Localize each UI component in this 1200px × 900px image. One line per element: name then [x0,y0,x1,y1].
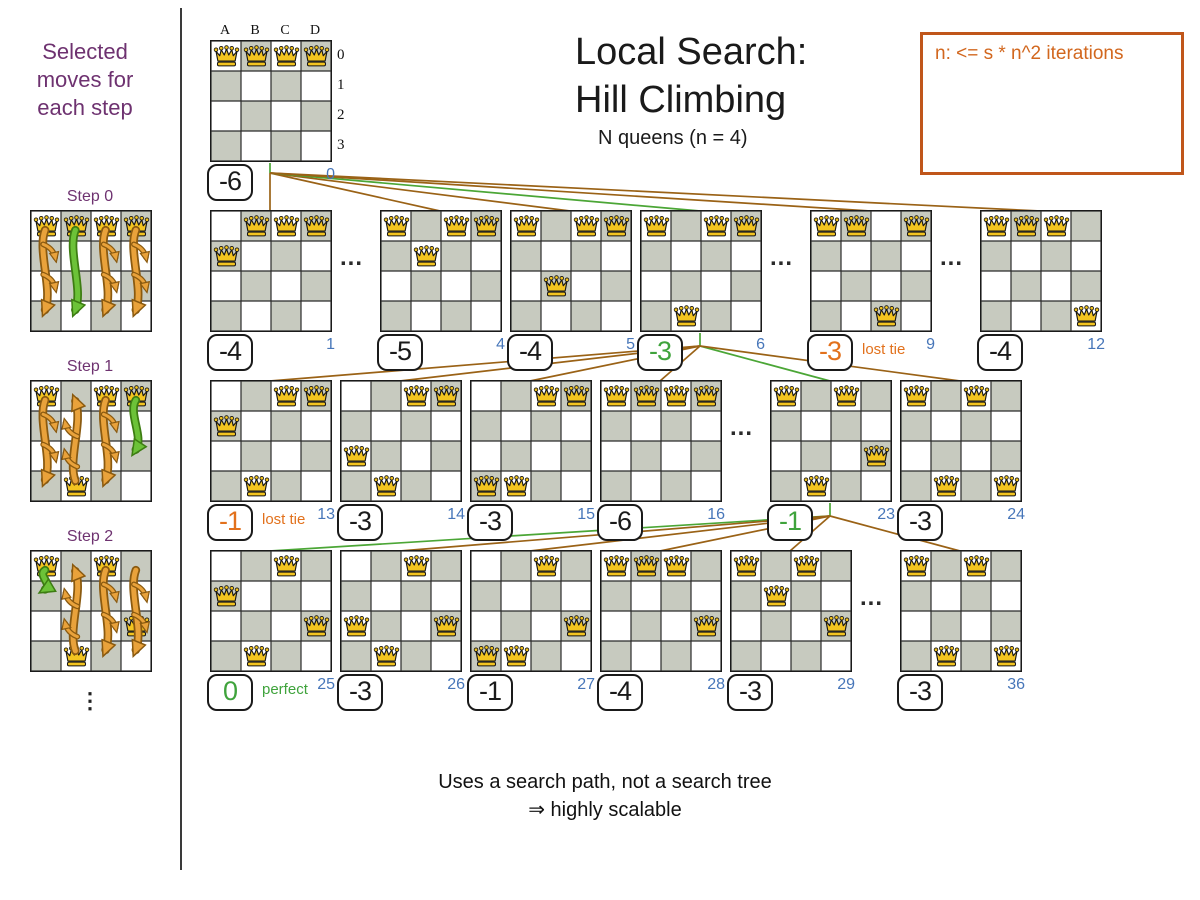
board-cell [861,381,891,411]
board-cell [701,241,731,271]
board-cell [701,301,731,331]
iteration-index: 12 [1087,336,1105,354]
board-cell [91,381,121,411]
footer-line2: ⇒ highly scalable [180,796,1030,824]
row1-ellipsis-b: ... [770,244,793,272]
board-cell [271,211,301,241]
board-cell [271,131,301,161]
board-cell [471,271,501,301]
board-cell [821,611,851,641]
board-cell [341,381,371,411]
chessboard [770,380,892,502]
board-cell [31,241,61,271]
iteration-index: 13 [317,506,335,524]
board-cell [371,611,401,641]
board-cell [241,211,271,241]
board-cell [371,581,401,611]
board-cell [501,381,531,411]
chessboard [470,550,592,672]
board-cell [771,471,801,501]
chessboard [900,550,1022,672]
board-cell [301,611,331,641]
board-cell [61,301,91,331]
queen-icon [503,475,530,498]
board-cell [771,441,801,471]
board-cell [631,581,661,611]
queen-icon [673,305,700,328]
board-cell [931,611,961,641]
board-cell [661,551,691,581]
board-cell [121,411,151,441]
board-cell [1041,211,1071,241]
tree-board-12: -412 [980,210,1103,332]
board-cell [431,581,461,611]
board-cell [531,551,561,581]
board-cell [601,441,631,471]
board-cell [211,581,241,611]
iteration-index: 28 [707,676,725,694]
board-cell [901,271,931,301]
queen-icon [33,555,60,578]
score-badge: -5 [377,334,423,371]
board-cell [901,611,931,641]
board-cell [731,211,761,241]
board-cell [431,441,461,471]
board-cell [31,551,61,581]
board-cell [61,611,91,641]
board-cell [601,471,631,501]
iteration-index: 27 [577,676,595,694]
queen-icon [63,645,90,668]
board-cell [631,611,661,641]
board-cell [811,211,841,241]
queen-icon [803,475,830,498]
board-cell [211,301,241,331]
board-cell [701,211,731,241]
board-cell [431,411,461,441]
board-cell [301,71,331,101]
board-cell [91,551,121,581]
board-cell [991,641,1021,671]
root-board: ABCD0123-60 [210,40,333,162]
board-cell [931,641,961,671]
board-cell [31,271,61,301]
board-cell [601,411,631,441]
queen-icon [903,215,930,238]
board-cell [801,411,831,441]
board-cell [471,211,501,241]
queen-icon [823,615,850,638]
column-labels: ABCD [210,23,330,39]
board-cell [401,381,431,411]
board-cell [661,641,691,671]
vertical-divider [180,8,182,870]
board-cell [441,271,471,301]
board-cell [1041,241,1071,271]
board-cell [861,441,891,471]
queen-icon [303,385,330,408]
queen-icon [373,645,400,668]
board-cell [121,381,151,411]
board-cell [871,271,901,301]
sidebar-step0-board: Step 0 [30,210,153,332]
score-badge: -3 [337,674,383,711]
board-cell [411,211,441,241]
board-cell [981,301,1011,331]
board-cell [241,441,271,471]
board-cell [531,441,561,471]
board-cell [991,551,1021,581]
queen-icon [273,555,300,578]
iteration-index: 15 [577,506,595,524]
chessboard [640,210,762,332]
board-cell [501,611,531,641]
queen-icon [833,385,860,408]
board-cell [901,411,931,441]
queen-icon [343,615,370,638]
row1-ellipsis-a: ... [340,244,363,272]
board-cell [931,441,961,471]
board-cell [731,611,761,641]
queen-icon [343,445,370,468]
board-cell [691,381,721,411]
board-cell [511,301,541,331]
board-cell [631,641,661,671]
board-cell [791,551,821,581]
board-cell [211,131,241,161]
board-cell [271,241,301,271]
tree-board-29: -329 [730,550,853,672]
board-cell [301,211,331,241]
chessboard [470,380,592,502]
score-badge: -4 [507,334,553,371]
chessboard [30,550,152,672]
board-cell [661,381,691,411]
board-cell [801,381,831,411]
board-cell [901,381,931,411]
board-cell [341,611,371,641]
board-cell [991,381,1021,411]
board-cell [411,301,441,331]
board-cell [91,441,121,471]
board-cell [561,641,591,671]
board-cell [791,581,821,611]
score-badge: -3 [897,674,943,711]
board-cell [121,551,151,581]
board-cell [661,411,691,441]
board-cell [501,471,531,501]
board-cell [961,611,991,641]
tree-board-4: -54 [380,210,503,332]
board-cell [471,641,501,671]
queen-icon [573,215,600,238]
board-cell [791,641,821,671]
board-cell [541,271,571,301]
board-cell [541,301,571,331]
board-cell [471,551,501,581]
board-cell [91,471,121,501]
board-cell [61,551,91,581]
queen-icon [963,555,990,578]
board-cell [271,41,301,71]
board-cell [561,611,591,641]
tree-board-9: -3lost tie9 [810,210,933,332]
tree-board-25: 0perfect25 [210,550,333,672]
board-cell [1011,301,1041,331]
board-cell [691,611,721,641]
queen-icon [273,45,300,68]
board-cell [271,611,301,641]
board-cell [991,471,1021,501]
board-cell [91,241,121,271]
board-cell [671,301,701,331]
board-cell [31,641,61,671]
queen-icon [33,215,60,238]
board-cell [731,301,761,331]
board-cell [431,381,461,411]
queen-icon [443,215,470,238]
board-cell [931,581,961,611]
board-cell [901,441,931,471]
board-cell [61,581,91,611]
board-cell [371,441,401,471]
queen-icon [33,385,60,408]
score-badge: -1 [207,504,253,541]
board-cell [91,301,121,331]
board-cell [91,271,121,301]
board-cell [871,301,901,331]
board-cell [631,551,661,581]
board-cell [661,471,691,501]
board-cell [931,381,961,411]
board-cell [121,471,151,501]
board-cell [211,41,241,71]
board-cell [691,411,721,441]
board-cell [841,211,871,241]
queen-icon [273,215,300,238]
score-badge: -6 [597,504,643,541]
board-cell [531,381,561,411]
board-cell [341,411,371,441]
iteration-index: 6 [756,336,765,354]
board-cell [431,471,461,501]
tree-board-23: -123 [770,380,893,502]
page-title: Local Search: Hill Climbing [575,28,807,124]
footer-line1: Uses a search path, not a search tree [180,768,1030,796]
chessboard [900,380,1022,502]
board-cell [61,211,91,241]
board-cell [121,611,151,641]
board-cell [401,611,431,641]
board-cell [861,411,891,441]
board-cell [901,211,931,241]
board-cell [631,471,661,501]
board-cell [601,241,631,271]
board-cell [61,471,91,501]
queen-icon [1073,305,1100,328]
board-cell [991,611,1021,641]
board-cell [241,641,271,671]
queen-icon [243,215,270,238]
board-cell [811,241,841,271]
score-badge: -3 [807,334,853,371]
queen-icon [243,645,270,668]
sidebar-step2-board: Step 2 [30,550,153,672]
iteration-index: 29 [837,676,855,694]
board-cell [211,381,241,411]
board-cell [671,271,701,301]
board-cell [731,271,761,301]
queen-icon [793,555,820,578]
footer-note: Uses a search path, not a search tree ⇒ … [180,768,1030,824]
board-cell [931,411,961,441]
chessboard [210,550,332,672]
score-badge: -3 [637,334,683,371]
board-cell [531,611,561,641]
step-label: Step 0 [30,188,150,206]
board-cell [401,641,431,671]
board-cell [371,641,401,671]
board-cell [631,411,661,441]
board-cell [401,581,431,611]
slide-canvas: Selected moves for each step Step 0 Step… [0,0,1200,900]
queen-icon [243,45,270,68]
score-badge: 0 [207,674,253,711]
board-cell [1041,301,1071,331]
score-badge: -3 [897,504,943,541]
board-cell [831,411,861,441]
tree-board-28: -428 [600,550,723,672]
tree-board-16: -616 [600,380,723,502]
board-cell [561,471,591,501]
board-cell [961,581,991,611]
board-cell [121,211,151,241]
queen-icon [603,215,630,238]
score-badge: -3 [467,504,513,541]
board-cell [821,551,851,581]
board-cell [471,301,501,331]
tree-board-36: -336 [900,550,1023,672]
board-cell [471,611,501,641]
board-cell [471,381,501,411]
queen-icon [533,555,560,578]
board-cell [531,641,561,671]
step-label: Step 1 [30,358,150,376]
board-cell [241,411,271,441]
board-cell [91,641,121,671]
iteration-index: 16 [707,506,725,524]
board-cell [211,271,241,301]
board-cell [211,411,241,441]
queen-icon [963,385,990,408]
board-cell [901,581,931,611]
board-cell [441,211,471,241]
board-cell [961,411,991,441]
queen-icon [993,645,1020,668]
board-cell [271,101,301,131]
tree-board-27: -127 [470,550,593,672]
board-cell [301,41,331,71]
queen-icon [243,475,270,498]
queen-icon [563,385,590,408]
board-cell [241,101,271,131]
chessboard [340,550,462,672]
queen-icon [543,275,570,298]
board-cell [541,241,571,271]
board-cell [691,471,721,501]
board-cell [381,211,411,241]
board-cell [91,611,121,641]
sidebar-step1-board: Step 1 [30,380,153,502]
board-cell [601,581,631,611]
queen-icon [643,215,670,238]
queen-icon [123,385,150,408]
chessboard [810,210,932,332]
board-cell [501,641,531,671]
score-tag: lost tie [262,511,305,528]
queen-icon [633,385,660,408]
iteration-index: 4 [496,336,505,354]
chessboard [510,210,632,332]
queen-icon [633,555,660,578]
board-cell [501,411,531,441]
score-tag: perfect [262,681,308,698]
queen-icon [813,215,840,238]
board-cell [31,411,61,441]
queen-icon [303,45,330,68]
queen-icon [273,385,300,408]
board-cell [981,211,1011,241]
board-cell [271,641,301,671]
iterations-note-box: n: <= s * n^2 iterations [920,32,1184,175]
iteration-index: 14 [447,506,465,524]
tree-board-15: -315 [470,380,593,502]
board-cell [271,411,301,441]
board-cell [501,441,531,471]
board-cell [691,641,721,671]
queen-icon [663,555,690,578]
chessboard [210,380,332,502]
queen-icon [213,585,240,608]
row2-ellipsis: ... [730,414,753,442]
board-cell [961,471,991,501]
board-cell [241,551,271,581]
board-cell [771,381,801,411]
board-cell [1041,271,1071,301]
queen-icon [863,445,890,468]
board-cell [471,441,501,471]
board-cell [241,241,271,271]
row1-ellipsis-c: ... [940,244,963,272]
queen-icon [603,555,630,578]
board-cell [211,101,241,131]
score-badge: -6 [207,164,253,201]
board-cell [831,441,861,471]
board-cell [431,611,461,641]
board-cell [121,641,151,671]
board-cell [991,581,1021,611]
chessboard [210,210,332,332]
board-cell [241,271,271,301]
board-cell [901,471,931,501]
board-cell [961,381,991,411]
queen-icon [903,555,930,578]
queen-icon [213,245,240,268]
board-cell [471,241,501,271]
board-cell [211,441,241,471]
queen-icon [403,385,430,408]
board-cell [901,241,931,271]
